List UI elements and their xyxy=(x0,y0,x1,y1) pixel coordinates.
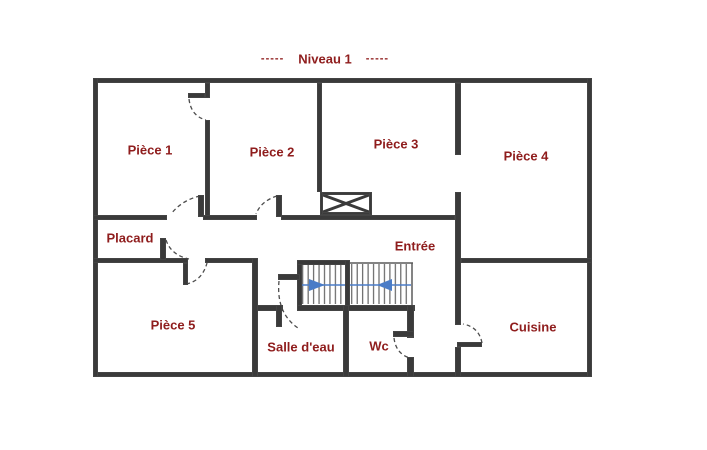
door-arc-cuisine xyxy=(463,324,482,343)
wall-outer-left xyxy=(93,78,98,377)
plan-graphics xyxy=(0,0,707,450)
door-arc-piece5 xyxy=(186,263,207,284)
wall-corridor-top-c xyxy=(281,215,455,220)
wall-corridor-top-a xyxy=(93,215,167,220)
wall-cuisine-top xyxy=(461,258,592,263)
room-label-piece-2: Pièce 2 xyxy=(250,145,295,160)
wall-corridor-bottom-a xyxy=(93,258,188,263)
door-arc-wc xyxy=(394,338,410,358)
stair-wall-left xyxy=(297,260,302,311)
wall-wc-right-lower xyxy=(407,357,414,377)
stair-wall-top xyxy=(297,260,350,265)
door-leaf-p1-bottom xyxy=(198,195,204,217)
room-label-piece-3: Pièce 3 xyxy=(374,137,419,152)
door-leaf-p1-top xyxy=(188,93,205,98)
door-arc-piece2-bottom xyxy=(256,196,277,214)
door-arcs xyxy=(166,99,482,358)
wall-vestibule-stub xyxy=(278,274,300,280)
room-label-piece-5: Pièce 5 xyxy=(151,318,196,333)
wall-salle-d-eau-wc xyxy=(343,305,349,377)
door-leaf-p5 xyxy=(183,263,188,285)
duct-box-right xyxy=(369,192,372,215)
wall-salle-d-eau-L xyxy=(276,305,282,327)
room-label-placard: Placard xyxy=(107,231,154,246)
room-label-cuisine: Cuisine xyxy=(510,320,557,335)
wall-outer-top xyxy=(93,78,592,83)
door-arc-piece1-bottom xyxy=(171,196,200,214)
door-arc-piece1-top xyxy=(189,99,206,120)
wall-p2-p3 xyxy=(317,83,322,192)
wall-corridor-top-b xyxy=(203,215,257,220)
door-arc-placard xyxy=(166,240,189,259)
door-leaf-wc xyxy=(393,331,414,337)
floor-plan: ----- Niveau 1 ----- xyxy=(0,0,707,450)
stair-wall-divider xyxy=(345,260,350,311)
stair-wall-bottom xyxy=(297,305,415,311)
wall-p3-p4-upper xyxy=(455,83,461,155)
duct-box-top xyxy=(320,192,372,195)
wall-p5-salle-d-eau xyxy=(252,258,258,377)
door-leaf-p2-bottom xyxy=(276,195,282,217)
room-label-salle-d-eau: Salle d'eau xyxy=(267,340,334,355)
duct-cross-icon xyxy=(323,195,369,212)
room-label-piece-1: Pièce 1 xyxy=(128,143,173,158)
wall-outer-right xyxy=(587,78,592,377)
wall-corridor-bottom-b xyxy=(205,258,257,263)
duct-box-left xyxy=(320,192,323,215)
room-label-piece-4: Pièce 4 xyxy=(504,149,549,164)
wall-cuisine-west-lower xyxy=(455,347,461,377)
door-leaf-placard xyxy=(160,238,166,260)
room-label-entree: Entrée xyxy=(395,239,435,254)
room-label-wc: Wc xyxy=(369,339,389,354)
wall-p1-p2 xyxy=(205,120,210,218)
duct-box-bottom xyxy=(320,212,372,215)
wall-p1-p2-stub xyxy=(205,83,210,98)
